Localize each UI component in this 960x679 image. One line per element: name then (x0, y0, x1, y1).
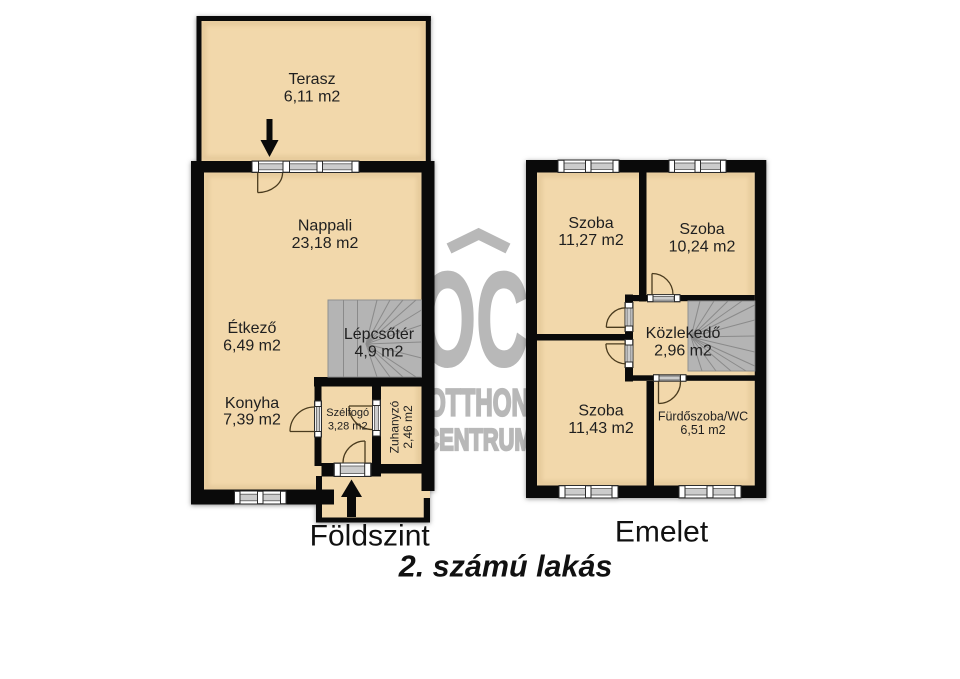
svg-text:Lépcsőtér: Lépcsőtér (344, 326, 415, 343)
svg-text:Szoba: Szoba (568, 215, 613, 232)
svg-text:2. számú lakás: 2. számú lakás (398, 550, 613, 584)
svg-text:Földszint: Földszint (310, 520, 431, 553)
svg-text:11,27 m2: 11,27 m2 (558, 232, 624, 249)
svg-text:7,39 m2: 7,39 m2 (223, 412, 281, 429)
svg-text:Szoba: Szoba (578, 403, 623, 420)
svg-text:6,49 m2: 6,49 m2 (223, 338, 281, 355)
svg-text:Közlekedő: Közlekedő (646, 325, 721, 342)
svg-text:Nappali: Nappali (298, 218, 352, 235)
svg-text:10,24 m2: 10,24 m2 (669, 239, 736, 256)
svg-text:CENTRUM: CENTRUM (424, 422, 533, 457)
svg-text:OTTHON: OTTHON (427, 382, 529, 424)
svg-text:Szélfogó: Szélfogó (326, 407, 369, 419)
svg-text:23,18 m2: 23,18 m2 (292, 235, 359, 252)
svg-text:2,96 m2: 2,96 m2 (654, 343, 712, 360)
svg-text:Étkező: Étkező (228, 318, 277, 337)
svg-text:4,9 m2: 4,9 m2 (355, 344, 404, 361)
svg-text:Terasz: Terasz (288, 71, 335, 88)
svg-text:6,11 m2: 6,11 m2 (284, 89, 341, 106)
svg-text:3,28 m2: 3,28 m2 (328, 420, 368, 432)
svg-text:Szoba: Szoba (679, 221, 724, 238)
svg-text:11,43 m2: 11,43 m2 (568, 420, 634, 437)
svg-text:Emelet: Emelet (615, 516, 709, 549)
svg-text:OC: OC (420, 246, 529, 395)
svg-text:Zuhanyzó: Zuhanyzó (388, 400, 402, 453)
svg-text:Konyha: Konyha (225, 395, 279, 412)
svg-text:6,51 m2: 6,51 m2 (680, 423, 725, 437)
svg-text:Fürdőszoba/WC: Fürdőszoba/WC (658, 409, 748, 423)
svg-text:2,46 m2: 2,46 m2 (401, 405, 415, 449)
